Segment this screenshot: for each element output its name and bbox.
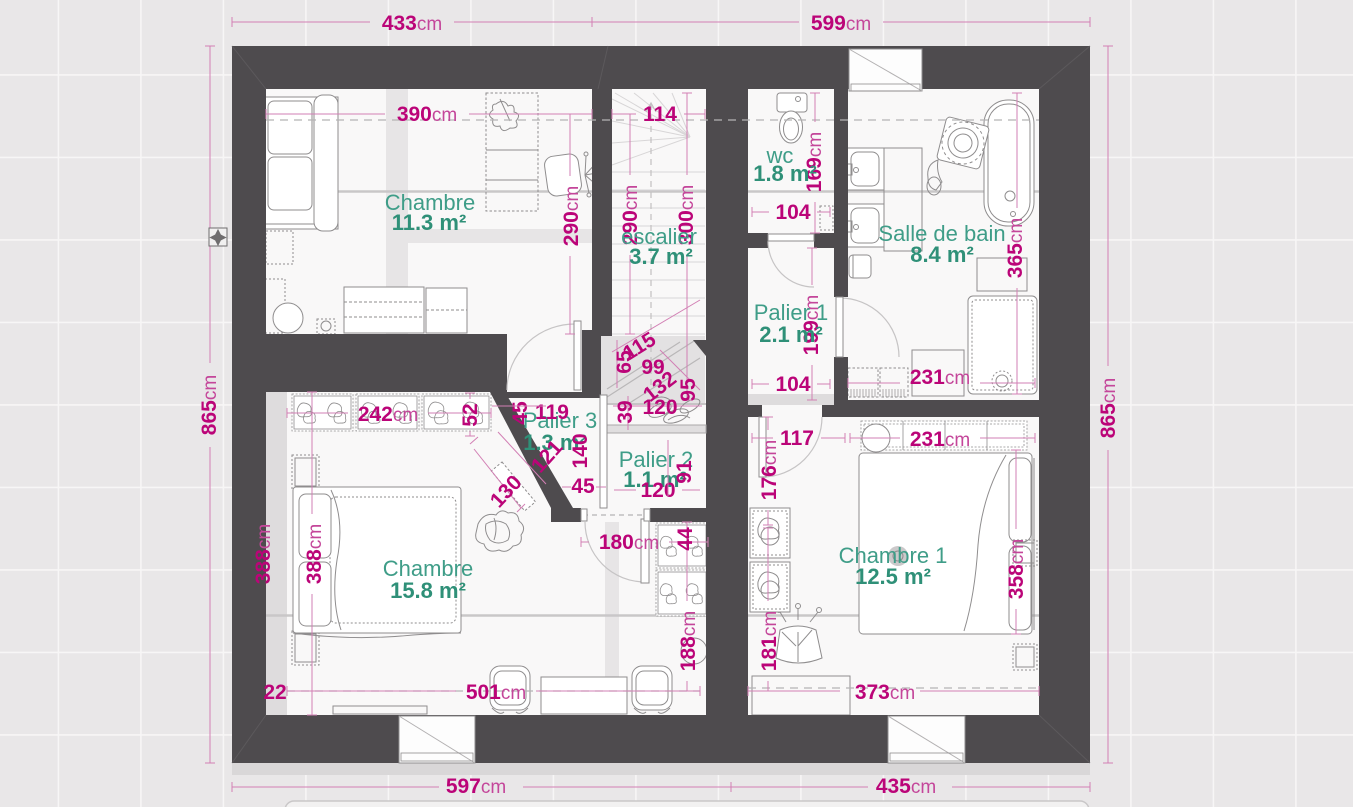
svg-text:95: 95 (677, 378, 700, 402)
svg-text:2.1 m²: 2.1 m² (759, 322, 823, 347)
svg-text:8.4 m²: 8.4 m² (910, 242, 974, 267)
svg-text:597cm: 597cm (446, 775, 506, 798)
svg-text:1.8 m²: 1.8 m² (753, 161, 817, 186)
svg-text:119: 119 (535, 401, 569, 424)
svg-text:91: 91 (673, 460, 696, 484)
svg-text:365cm: 365cm (1004, 218, 1027, 278)
svg-text:52: 52 (459, 403, 482, 426)
svg-text:388cm: 388cm (303, 524, 326, 584)
svg-text:15.8 m²: 15.8 m² (390, 578, 466, 603)
svg-text:373cm: 373cm (855, 681, 915, 704)
svg-text:176cm: 176cm (758, 440, 781, 500)
svg-text:104: 104 (775, 201, 810, 224)
svg-text:45: 45 (509, 401, 532, 425)
svg-text:104: 104 (775, 373, 810, 396)
svg-text:22: 22 (263, 681, 286, 704)
svg-text:188cm: 188cm (677, 611, 700, 671)
svg-text:865cm: 865cm (1097, 378, 1120, 438)
svg-text:140: 140 (569, 433, 592, 468)
svg-text:865cm: 865cm (198, 375, 221, 435)
svg-text:435cm: 435cm (876, 775, 936, 798)
svg-text:44: 44 (674, 527, 697, 551)
svg-text:501cm: 501cm (466, 681, 526, 704)
svg-text:120: 120 (640, 479, 675, 502)
svg-text:433cm: 433cm (382, 12, 442, 35)
svg-text:114: 114 (643, 103, 677, 126)
svg-text:358cm: 358cm (1005, 539, 1028, 599)
svg-text:39: 39 (614, 400, 637, 423)
svg-text:231cm: 231cm (910, 366, 970, 389)
svg-text:12.5 m²: 12.5 m² (855, 564, 931, 589)
svg-text:231cm: 231cm (910, 428, 970, 451)
svg-text:390cm: 390cm (397, 103, 457, 126)
svg-text:3.7 m²: 3.7 m² (629, 244, 693, 269)
svg-text:11.3 m²: 11.3 m² (392, 210, 467, 235)
svg-text:599cm: 599cm (811, 12, 871, 35)
svg-text:181cm: 181cm (758, 611, 781, 671)
svg-text:180cm: 180cm (599, 531, 659, 554)
svg-text:45: 45 (571, 475, 595, 498)
svg-text:388cm: 388cm (252, 524, 275, 584)
svg-text:242cm: 242cm (358, 403, 418, 426)
svg-text:290cm: 290cm (560, 186, 583, 246)
svg-text:117: 117 (780, 427, 814, 450)
